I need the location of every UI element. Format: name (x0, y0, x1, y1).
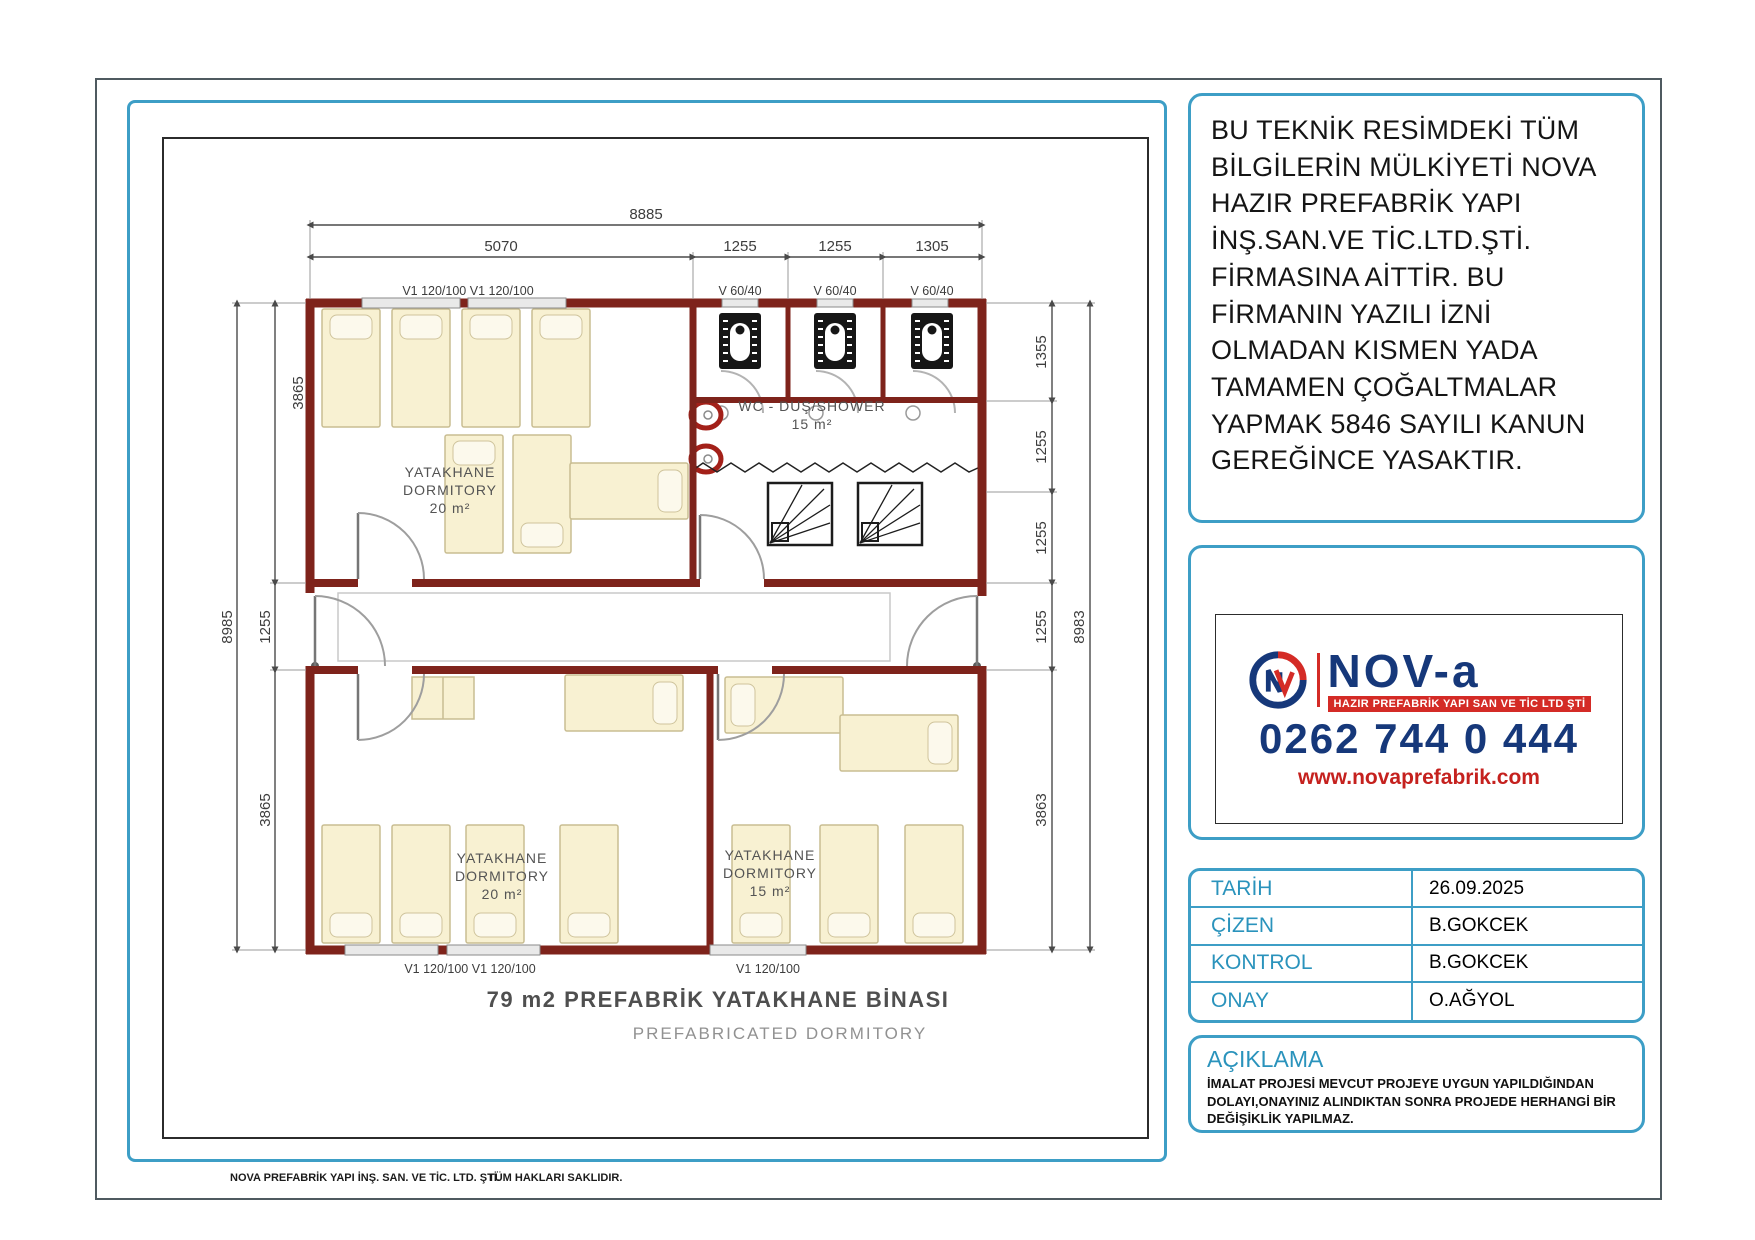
svg-text:DORMITORY: DORMITORY (403, 482, 497, 498)
floor-plan: 8885 5070 1255 1255 1305 8985 3865 1255 … (140, 115, 1155, 1145)
shower-curtain-zigzag (696, 463, 980, 472)
plan-title: 79 m2 PREFABRİK YATAKHANE BİNASI (487, 987, 950, 1012)
row-value: 26.09.2025 (1413, 871, 1642, 906)
dim-right-5: 3863 (1033, 793, 1050, 826)
table-row: TARİH 26.09.2025 (1191, 871, 1642, 908)
svg-text:15 m²: 15 m² (792, 416, 833, 432)
dim-left-total: 8985 (219, 610, 236, 643)
window-label-top: V1 120/100 V1 120/100 (402, 284, 533, 298)
shower-icons (768, 483, 922, 545)
note-box: AÇIKLAMA İMALAT PROJESİ MEVCUT PROJEYE U… (1188, 1035, 1645, 1133)
row-label: ONAY (1191, 983, 1413, 1020)
window-label-bottom-right: V1 120/100 (736, 962, 800, 976)
row-value: O.AĞYOL (1413, 983, 1642, 1020)
nova-emblem-icon (1247, 649, 1309, 711)
row-value: B.GOKCEK (1413, 908, 1642, 943)
brand-wordmark: NOV-a (1328, 648, 1481, 694)
row-label: TARİH (1191, 871, 1413, 906)
table-row: KONTROL B.GOKCEK (1191, 946, 1642, 983)
row-label: ÇİZEN (1191, 908, 1413, 943)
drawing-sheet: 8885 5070 1255 1255 1305 8985 3865 1255 … (0, 0, 1755, 1240)
website-link[interactable]: www.novaprefabrik.com (1298, 766, 1540, 790)
plan-subtitle: PREFABRICATED DORMITORY (633, 1024, 927, 1043)
dim-right-1: 1355 (1033, 335, 1050, 368)
dim-right-total: 8983 (1071, 610, 1088, 643)
dim-top-2: 1255 (723, 238, 756, 255)
dim-left-2: 1255 (257, 610, 274, 643)
svg-text:15 m²: 15 m² (750, 883, 791, 899)
footer-company: NOVA PREFABRİK YAPI İNŞ. SAN. VE TİC. LT… (230, 1172, 500, 1184)
dim-right-4: 1255 (1033, 610, 1050, 643)
row-label: KONTROL (1191, 946, 1413, 981)
dim-left-3: 3865 (257, 793, 274, 826)
dim-right-3: 1255 (1033, 521, 1050, 554)
dim-top-total: 8885 (629, 206, 662, 223)
window-label-bottom-left: V1 120/100 V1 120/100 (404, 962, 535, 976)
copyright-box: BU TEKNİK RESİMDEKİ TÜM BİLGİLERİN MÜLKİ… (1188, 93, 1645, 523)
corridor (311, 593, 981, 670)
phone-number: 0262 744 0 444 (1259, 716, 1579, 762)
svg-text:YATAKHANE: YATAKHANE (405, 464, 496, 480)
logo-row: NOV-a HAZIR PREFABRİK YAPI SAN VE TİC LT… (1247, 648, 1592, 712)
note-title: AÇIKLAMA (1207, 1046, 1626, 1073)
svg-text:YATAKHANE: YATAKHANE (457, 850, 548, 866)
note-body: İMALAT PROJESİ MEVCUT PROJEYE UYGUN YAPI… (1207, 1075, 1626, 1128)
svg-text:DORMITORY: DORMITORY (723, 865, 817, 881)
dim-top-4: 1305 (915, 238, 948, 255)
logo-card: NOV-a HAZIR PREFABRİK YAPI SAN VE TİC LT… (1215, 614, 1623, 824)
table-row: ONAY O.AĞYOL (1191, 983, 1642, 1020)
dim-top-1: 5070 (484, 238, 517, 255)
copyright-text: BU TEKNİK RESİMDEKİ TÜM BİLGİLERİN MÜLKİ… (1211, 112, 1622, 479)
dim-top-3: 1255 (818, 238, 851, 255)
window-label-wc-1: V 60/40 (718, 284, 761, 298)
row-value: B.GOKCEK (1413, 946, 1642, 981)
window-label-wc-3: V 60/40 (910, 284, 953, 298)
footer-rights: TÜM HAKLARI SAKLIDIR. (488, 1172, 622, 1184)
logo-box: NOV-a HAZIR PREFABRİK YAPI SAN VE TİC LT… (1188, 545, 1645, 840)
dim-left-1: 3865 (290, 376, 307, 409)
svg-text:20 m²: 20 m² (430, 500, 471, 516)
logo-divider (1317, 653, 1320, 707)
dim-right-2: 1255 (1033, 430, 1050, 463)
window-label-wc-2: V 60/40 (813, 284, 856, 298)
beds-dormitory-bottom-right (725, 677, 963, 943)
svg-text:WC - DUŞ/SHOWER: WC - DUŞ/SHOWER (738, 398, 885, 414)
svg-text:20 m²: 20 m² (482, 886, 523, 902)
beds-dormitory-bottom-left (322, 675, 683, 943)
table-row: ÇİZEN B.GOKCEK (1191, 908, 1642, 945)
brand-tagline: HAZIR PREFABRİK YAPI SAN VE TİC LTD ŞTİ (1328, 696, 1592, 712)
svg-text:DORMITORY: DORMITORY (455, 868, 549, 884)
svg-text:YATAKHANE: YATAKHANE (725, 847, 816, 863)
title-block-table: TARİH 26.09.2025 ÇİZEN B.GOKCEK KONTROL … (1188, 868, 1645, 1023)
